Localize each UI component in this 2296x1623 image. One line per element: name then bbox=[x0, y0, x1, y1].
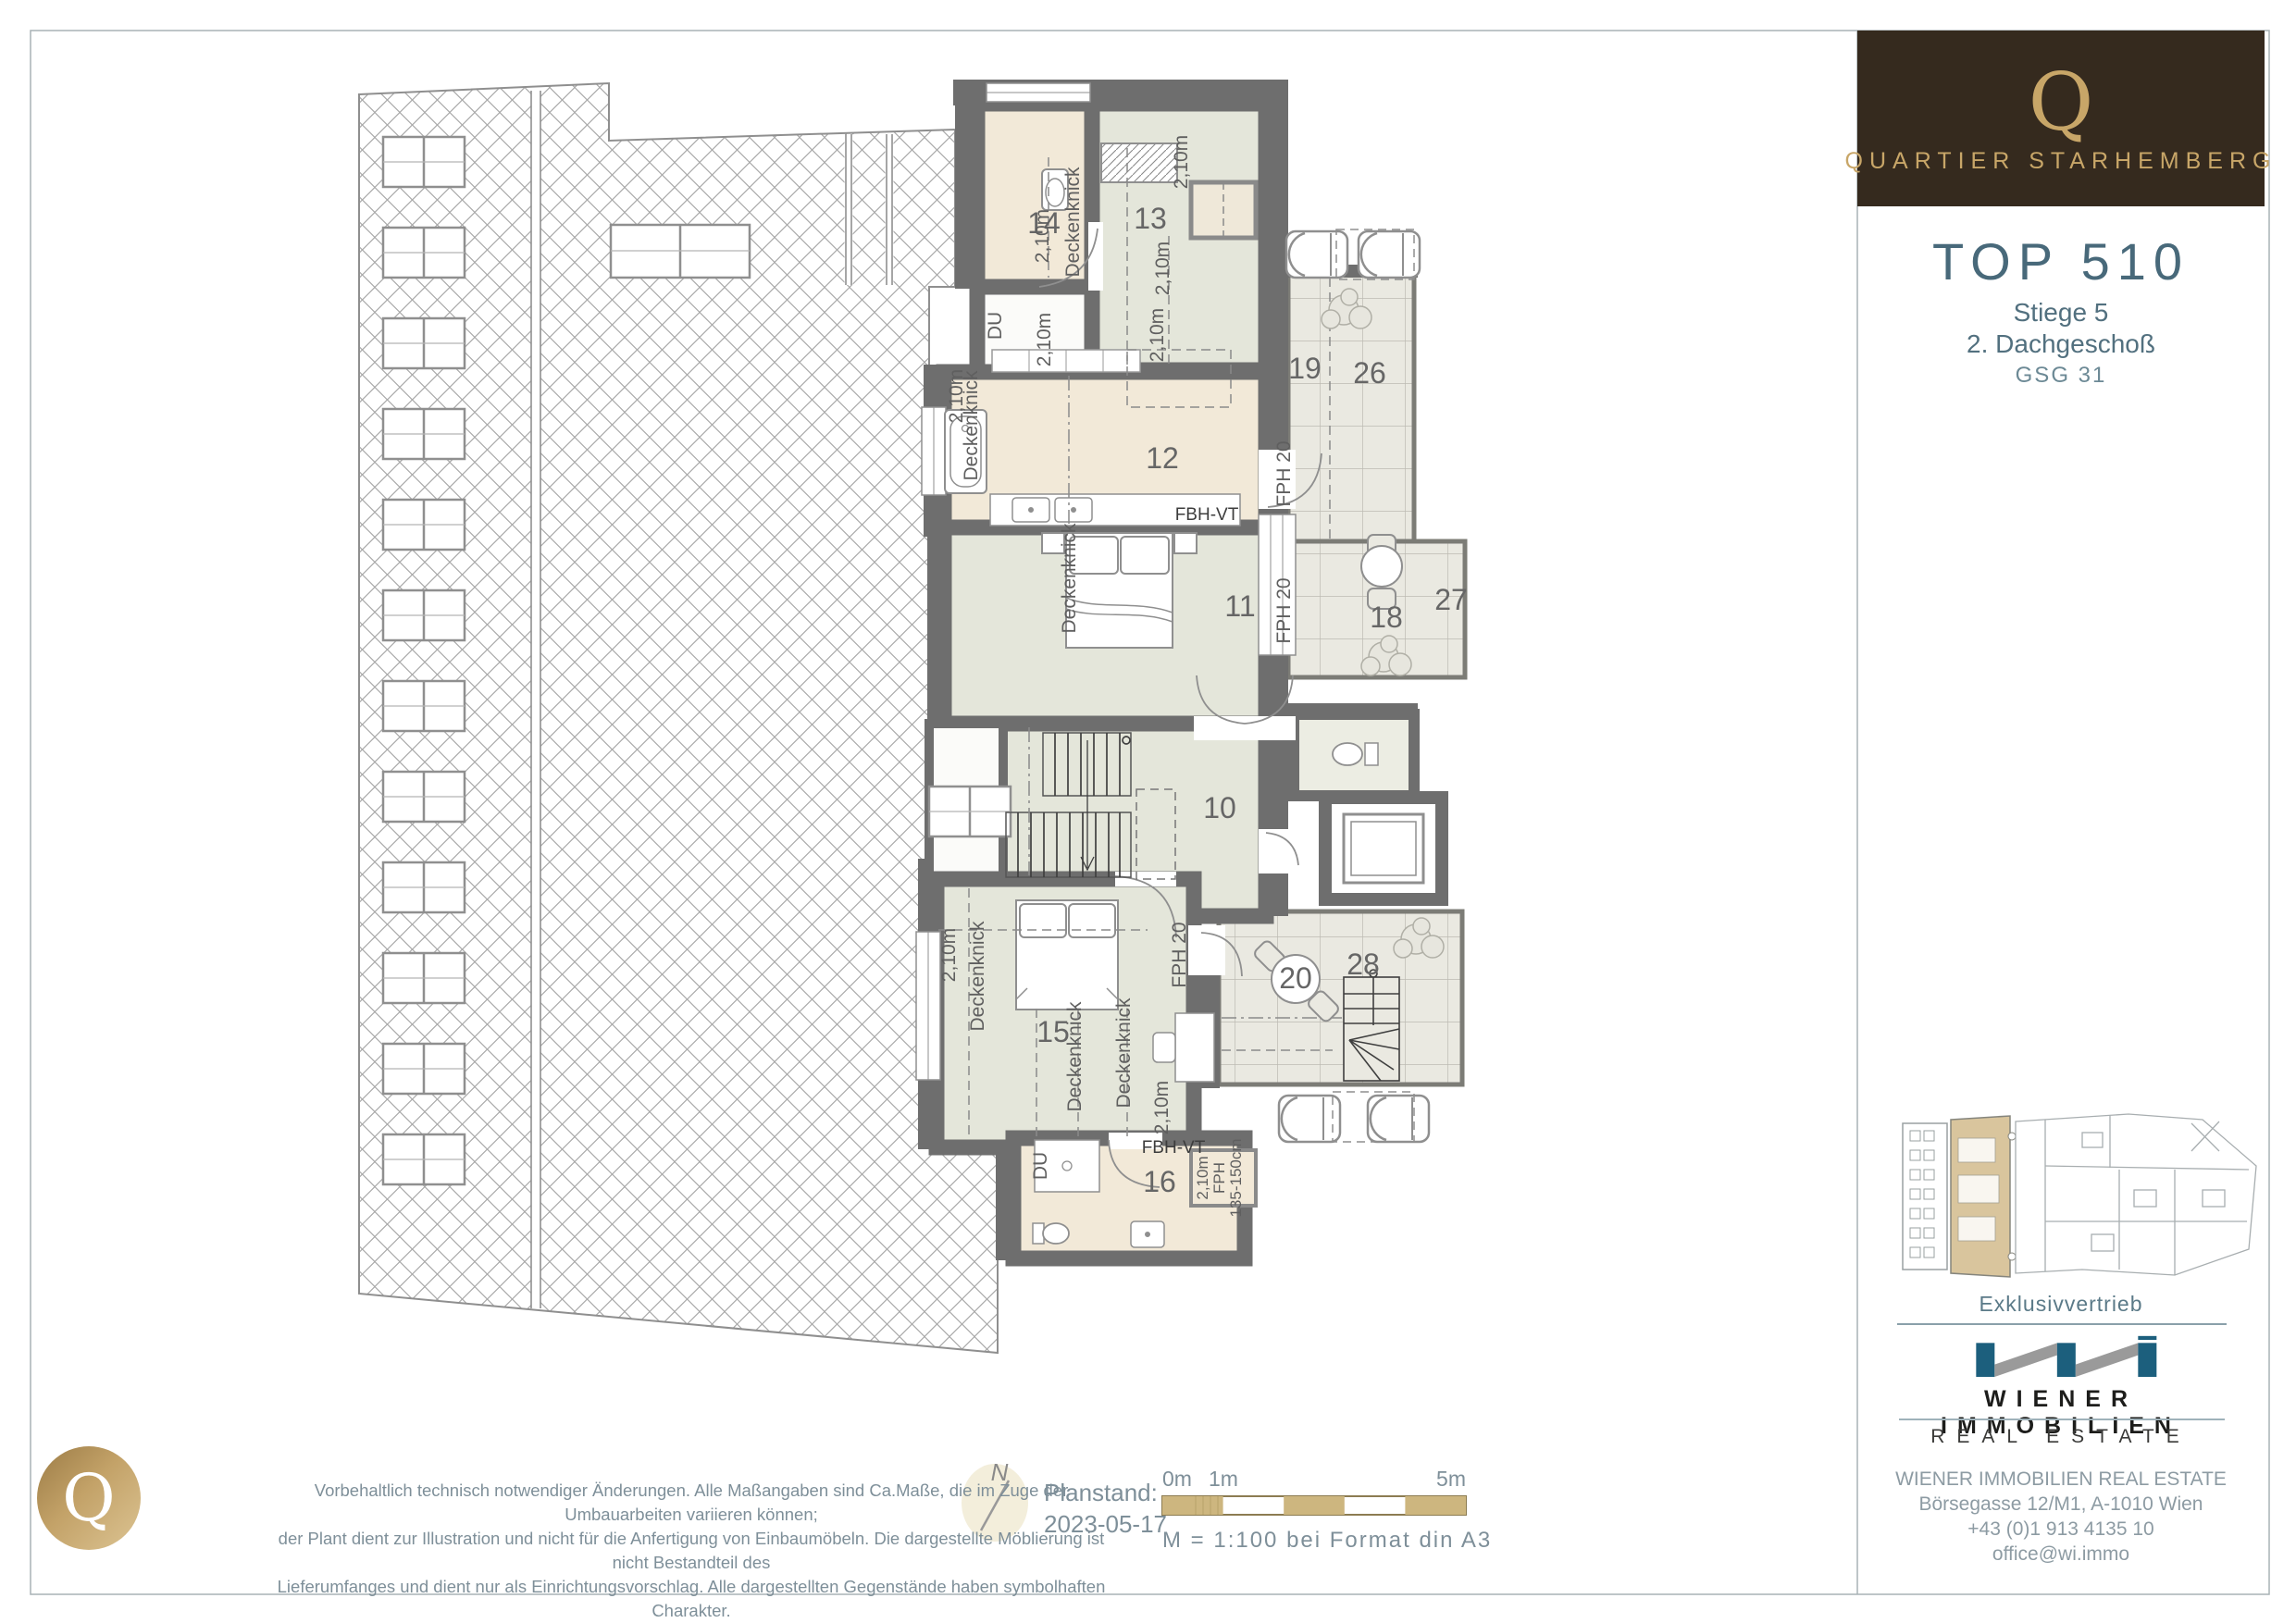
planstand-block: Planstand: 2023-05-17 bbox=[1044, 1477, 1322, 1540]
unit-floor: 2. Dachgeschoß bbox=[1857, 329, 2265, 359]
divider bbox=[1897, 1323, 2227, 1325]
contact-line: Börsegasse 12/M1, A-1010 Wien bbox=[1857, 1492, 2265, 1517]
height-tag: 2,10m bbox=[1032, 209, 1053, 263]
deckenknick-tag: Deckenknick bbox=[1062, 167, 1084, 278]
wi-brand-line2: REAL ESTATE bbox=[1857, 1426, 2265, 1448]
room-label-26: 26 bbox=[1353, 356, 1386, 390]
fph20-tag: FPH 20 bbox=[1273, 440, 1295, 506]
fph-tag: FPH bbox=[1210, 1162, 1228, 1194]
room-label-11: 11 bbox=[1224, 589, 1255, 623]
divider bbox=[1899, 1419, 2225, 1420]
room-label-19: 19 bbox=[1288, 352, 1322, 385]
overview-facade bbox=[1903, 1123, 1947, 1270]
deckenknick-tag: Deckenknick bbox=[1059, 523, 1080, 634]
height-tag: 2,10m bbox=[1152, 242, 1173, 295]
height-tag: 2,10m bbox=[1171, 135, 1192, 189]
height-tag: 2,10m bbox=[938, 928, 960, 982]
wiener-immobilien-logo-icon bbox=[1922, 1332, 2200, 1384]
wardrobe-strip bbox=[992, 350, 1140, 372]
room-label-28: 28 bbox=[1347, 948, 1380, 981]
brand-logo-q-icon: Q bbox=[2029, 63, 2094, 142]
exclusive-heading: Exklusivvertrieb bbox=[1857, 1292, 2265, 1317]
height-tag: 2,10m bbox=[1147, 308, 1168, 362]
overview-unit-highlight bbox=[1951, 1116, 2016, 1277]
height-tag: 2,10m bbox=[1151, 1081, 1173, 1134]
height-tag: 2,10m bbox=[1034, 313, 1055, 366]
deckenknick-tag: Deckenknick bbox=[961, 370, 982, 481]
roof-area bbox=[359, 83, 998, 1353]
du-tag: DU bbox=[985, 312, 1006, 340]
planstand-date: 2023-05-17 bbox=[1044, 1508, 1322, 1540]
room-label-18: 18 bbox=[1370, 601, 1403, 634]
quartier-q-badge-icon: Q bbox=[37, 1446, 141, 1550]
toilet-room16 bbox=[1033, 1223, 1069, 1244]
fph20-tag: FPH 20 bbox=[1273, 577, 1295, 643]
disclaimer-line: Lieferumfanges und dient nur als Einrich… bbox=[274, 1575, 1109, 1623]
unit-title: TOP 510 bbox=[1857, 231, 2265, 291]
disclaimer-line: Vorbehaltlich technisch notwendiger Ände… bbox=[274, 1479, 1109, 1527]
contact-line: office@wi.immo bbox=[1857, 1542, 2265, 1567]
elevator-cab bbox=[1344, 814, 1423, 883]
site-overview-plan bbox=[1897, 1110, 2263, 1282]
bed-room15 bbox=[1016, 900, 1118, 1010]
deckenknick-tag: Deckenknick bbox=[1064, 1001, 1086, 1112]
disclaimer-text: Vorbehaltlich technisch notwendiger Ände… bbox=[274, 1479, 1109, 1623]
fph-range-tag: 135-150cm bbox=[1227, 1138, 1245, 1217]
wi-contact-block: WIENER IMMOBILIEN REAL ESTATE Börsegasse… bbox=[1857, 1467, 2265, 1567]
overview-building bbox=[2016, 1114, 2256, 1275]
contact-line: +43 (0)1 913 4135 10 bbox=[1857, 1517, 2265, 1542]
room-label-13: 13 bbox=[1134, 202, 1167, 235]
basin-room16 bbox=[1131, 1221, 1164, 1247]
du-tag: DU bbox=[1030, 1152, 1051, 1180]
room-label-20: 20 bbox=[1279, 961, 1312, 995]
room-label-12: 12 bbox=[1146, 441, 1179, 475]
deckenknick-tag: Deckenknick bbox=[967, 921, 988, 1032]
contact-line: WIENER IMMOBILIEN REAL ESTATE bbox=[1857, 1467, 2265, 1492]
planstand-label: Planstand: bbox=[1044, 1477, 1322, 1508]
q-badge-letter: Q bbox=[62, 1460, 115, 1536]
unit-code: GSG 31 bbox=[1857, 363, 2265, 389]
plan-sheet: { "brand": { "logo_letter": "Q", "name":… bbox=[0, 0, 2296, 1623]
toilet-wc bbox=[1333, 743, 1378, 765]
unit-stiege: Stiege 5 bbox=[1857, 298, 2265, 328]
fbhvt-tag: FBH-VT bbox=[1175, 505, 1239, 525]
scale-tick-5: 5m bbox=[1436, 1467, 1466, 1491]
brand-name: QUARTIER STARHEMBERG bbox=[1845, 148, 2277, 175]
brand-header: Q QUARTIER STARHEMBERG bbox=[1857, 31, 2265, 206]
outdoor-stair bbox=[1344, 970, 1399, 1081]
wardrobe-hatched bbox=[1101, 143, 1177, 182]
fbhvt-tag: FBH-VT bbox=[1142, 1138, 1206, 1158]
room-label-10: 10 bbox=[1203, 791, 1236, 824]
fph20-tag: FPH 20 bbox=[1169, 922, 1190, 987]
disclaimer-line: der Plant dient zur Illustration und nic… bbox=[274, 1527, 1109, 1575]
room-label-16: 16 bbox=[1143, 1165, 1176, 1198]
room-label-27: 27 bbox=[1434, 583, 1468, 616]
terrace-table-18 bbox=[1361, 535, 1402, 609]
height-tag: 2,10m bbox=[1194, 1156, 1211, 1199]
deckenknick-tag: Deckenknick bbox=[1113, 997, 1135, 1109]
